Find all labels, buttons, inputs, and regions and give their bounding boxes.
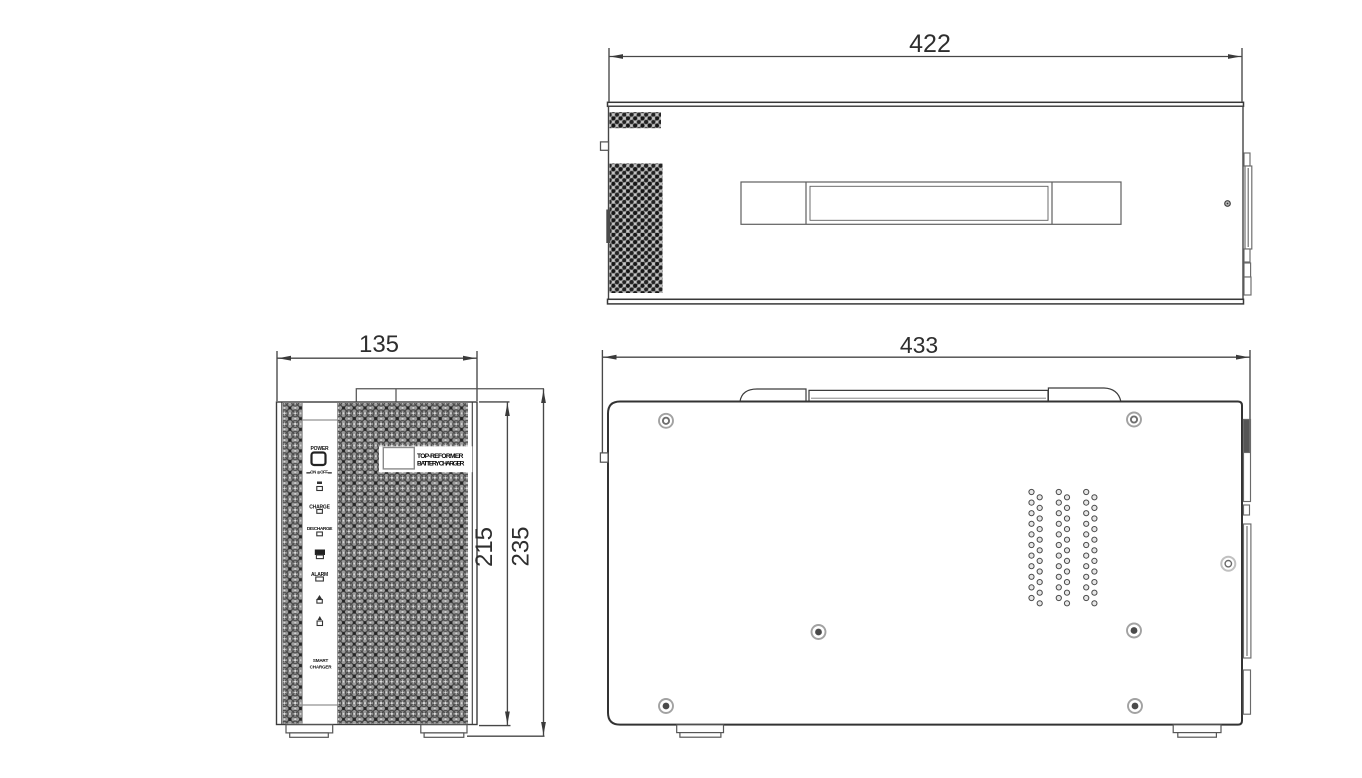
svg-text:TOP-REFORMER: TOP-REFORMER — [417, 453, 464, 460]
svg-text:422: 422 — [909, 30, 951, 58]
svg-text:SMART: SMART — [313, 658, 329, 663]
svg-text:135: 135 — [359, 331, 399, 358]
svg-text:215: 215 — [471, 527, 498, 567]
svg-text:CHARGER: CHARGER — [310, 665, 333, 670]
svg-text:▬ON ◎OFF▬: ▬ON ◎OFF▬ — [306, 470, 332, 475]
svg-text:BATTERY CHARGER: BATTERY CHARGER — [417, 461, 465, 468]
svg-text:433: 433 — [900, 332, 938, 358]
svg-text:POWER: POWER — [311, 446, 329, 452]
svg-text:235: 235 — [508, 526, 535, 566]
svg-text:DISCHARGE: DISCHARGE — [307, 526, 333, 532]
